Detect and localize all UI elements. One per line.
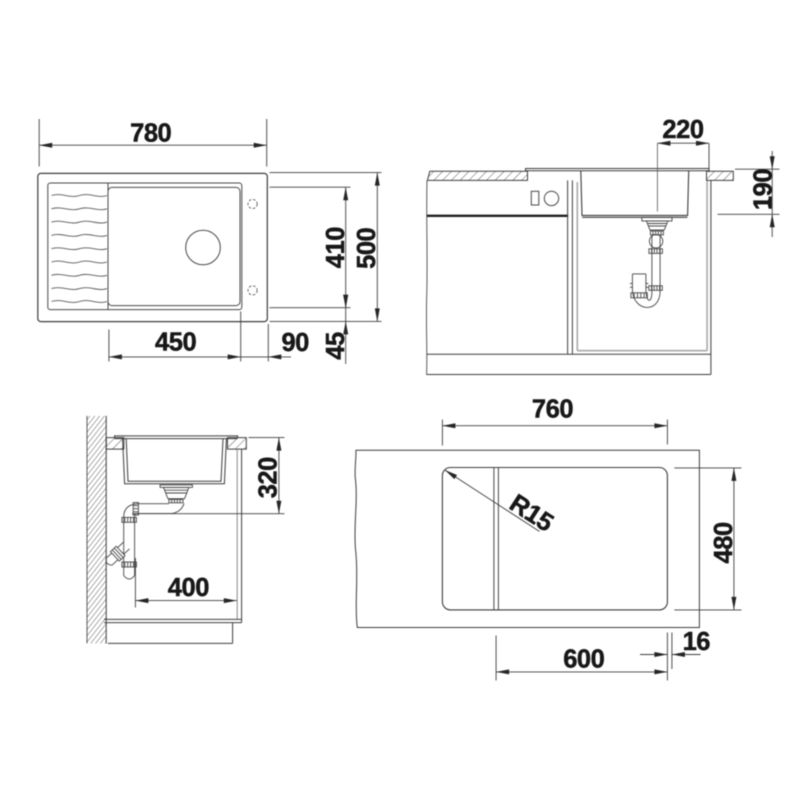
svg-text:480: 480: [710, 522, 738, 563]
svg-text:450: 450: [155, 328, 196, 356]
svg-text:760: 760: [532, 395, 573, 423]
svg-text:410: 410: [322, 227, 350, 268]
svg-text:500: 500: [353, 227, 381, 268]
svg-text:400: 400: [168, 574, 209, 602]
svg-text:90: 90: [281, 329, 309, 357]
svg-text:780: 780: [130, 119, 171, 147]
svg-text:320: 320: [255, 457, 283, 498]
svg-text:190: 190: [749, 169, 777, 210]
svg-text:220: 220: [662, 116, 703, 144]
svg-text:45: 45: [322, 332, 350, 360]
svg-text:16: 16: [683, 628, 711, 656]
svg-text:600: 600: [563, 645, 604, 673]
